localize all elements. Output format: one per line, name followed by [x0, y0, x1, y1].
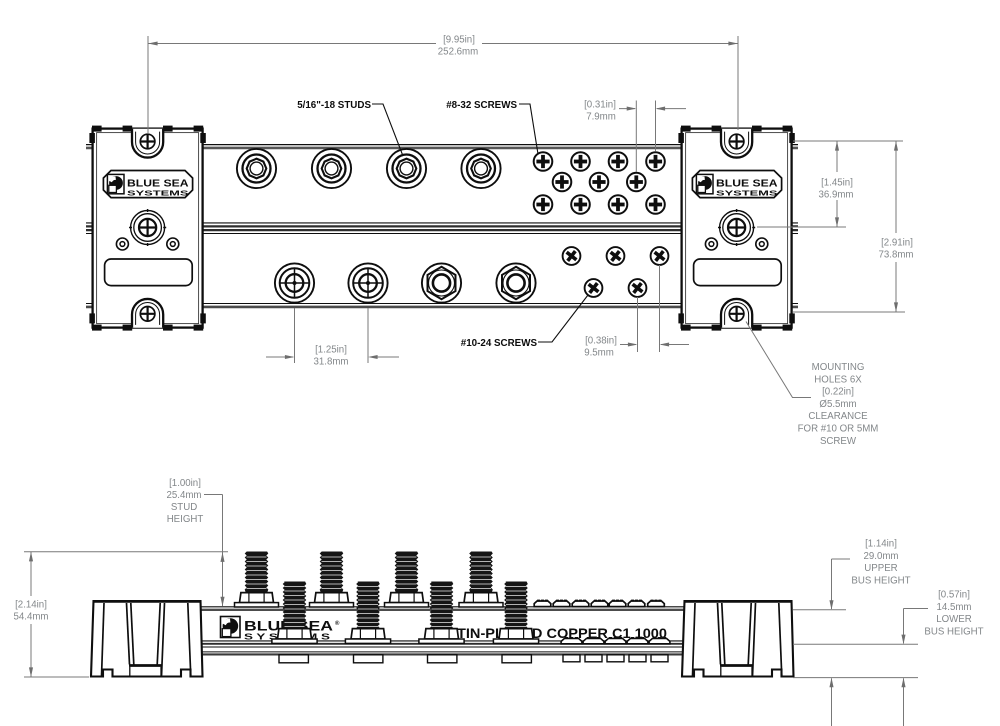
svg-text:[0.22in]: [0.22in] [822, 387, 854, 398]
svg-text:MOUNTING: MOUNTING [812, 362, 865, 373]
svg-text:252.6mm: 252.6mm [438, 47, 478, 58]
svg-text:73.8mm: 73.8mm [879, 250, 914, 261]
svg-text:[0.57in]: [0.57in] [938, 590, 970, 601]
svg-text:HEIGHT: HEIGHT [167, 514, 204, 525]
svg-text:31.8mm: 31.8mm [314, 357, 349, 368]
svg-text:BUS HEIGHT: BUS HEIGHT [924, 627, 983, 638]
svg-text:UPPER: UPPER [864, 563, 897, 574]
svg-text:9.5mm: 9.5mm [584, 348, 614, 359]
svg-text:Ø5.5mm: Ø5.5mm [819, 399, 856, 410]
svg-text:[1.14in]: [1.14in] [865, 539, 897, 550]
svg-text:14.5mm: 14.5mm [937, 602, 972, 613]
svg-text:[0.31in]: [0.31in] [584, 100, 616, 111]
svg-text:[1.45in]: [1.45in] [821, 178, 853, 189]
svg-text:[1.25in]: [1.25in] [315, 345, 347, 356]
svg-text:29.0mm: 29.0mm [864, 551, 899, 562]
svg-text:[2.14in]: [2.14in] [15, 600, 47, 611]
svg-text:5/16"-18 STUDS: 5/16"-18 STUDS [297, 100, 371, 111]
svg-text:LOWER: LOWER [936, 614, 972, 625]
svg-text:#8-32 SCREWS: #8-32 SCREWS [446, 100, 517, 111]
svg-text:STUD: STUD [171, 502, 197, 513]
svg-text:#10-24 SCREWS: #10-24 SCREWS [461, 338, 538, 349]
svg-text:CLEARANCE: CLEARANCE [808, 411, 868, 422]
svg-text:HOLES 6X: HOLES 6X [814, 374, 862, 385]
svg-text:36.9mm: 36.9mm [819, 190, 854, 201]
svg-text:7.9mm: 7.9mm [586, 112, 616, 123]
svg-text:FOR #10 OR 5MM: FOR #10 OR 5MM [798, 424, 879, 435]
svg-text:®: ® [335, 620, 340, 627]
svg-text:[2.91in]: [2.91in] [881, 238, 913, 249]
svg-text:BUS HEIGHT: BUS HEIGHT [851, 576, 910, 587]
svg-text:[0.38in]: [0.38in] [585, 336, 617, 347]
svg-text:25.4mm: 25.4mm [167, 490, 202, 501]
svg-text:SCREW: SCREW [820, 436, 857, 447]
svg-text:[1.00in]: [1.00in] [169, 478, 201, 489]
svg-text:[9.95in]: [9.95in] [443, 35, 475, 46]
svg-text:54.4mm: 54.4mm [14, 612, 49, 623]
